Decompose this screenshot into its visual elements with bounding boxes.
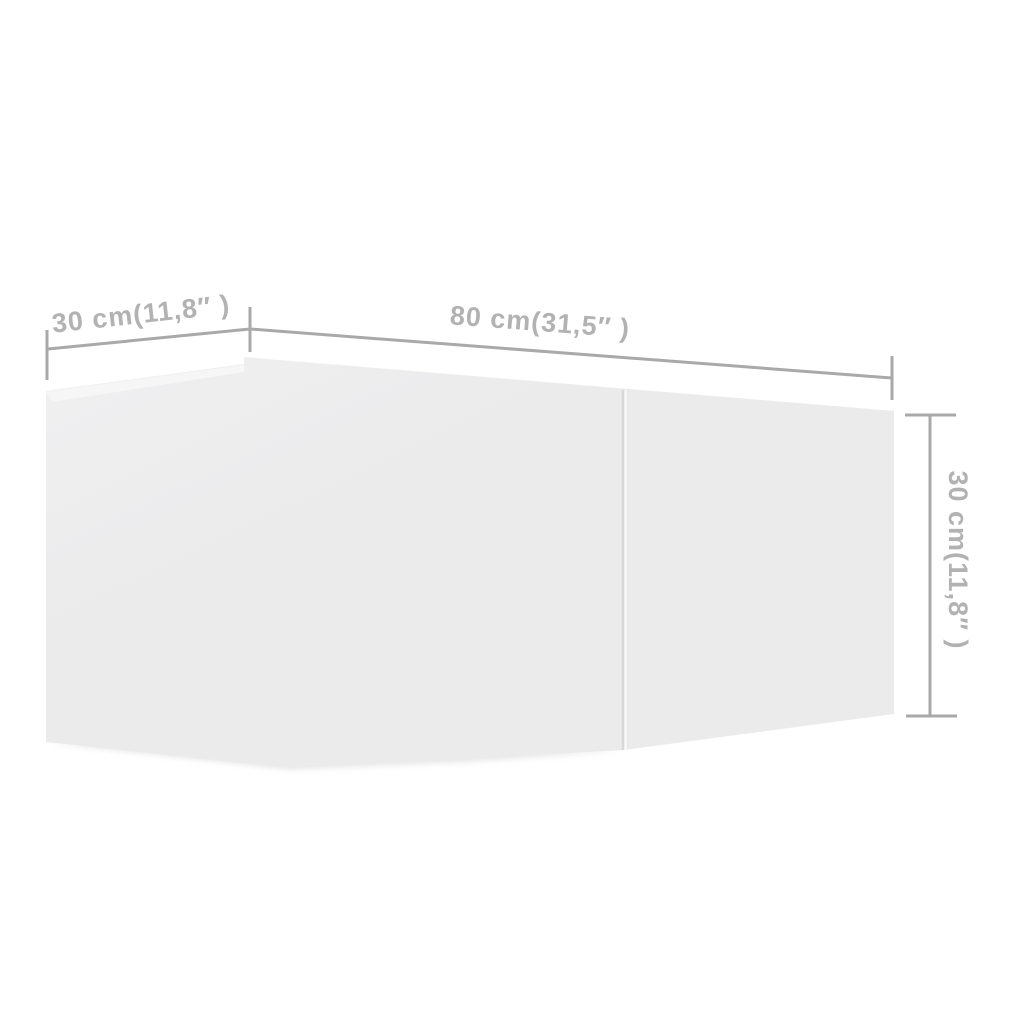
dimension-label-width: 80 cm(31,5″ ) (449, 300, 631, 343)
product-dimension-diagram: 30 cm(11,8″ )80 cm(31,5″ )30 cm(11,8″ ) (0, 0, 1024, 1024)
dimension-label-depth: 30 cm(11,8″ ) (50, 289, 231, 338)
product-image-canvas: 30 cm(11,8″ )80 cm(31,5″ )30 cm(11,8″ ) (0, 0, 1024, 1024)
dimension-label-height: 30 cm(11,8″ ) (943, 470, 973, 649)
cabinet-body (46, 357, 894, 768)
